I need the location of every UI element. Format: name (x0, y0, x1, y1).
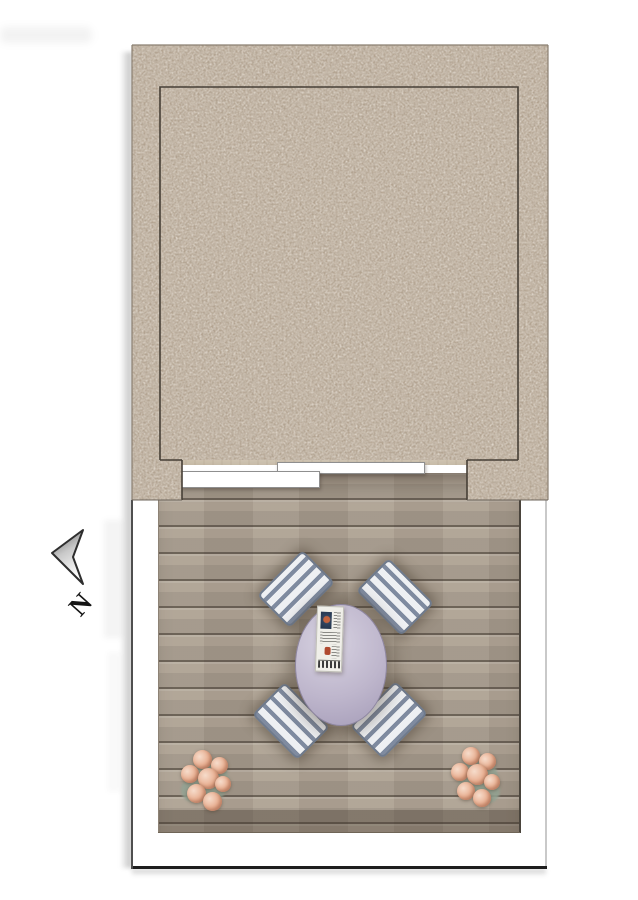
floor-plan-page: N (0, 0, 638, 900)
walls (0, 0, 638, 900)
